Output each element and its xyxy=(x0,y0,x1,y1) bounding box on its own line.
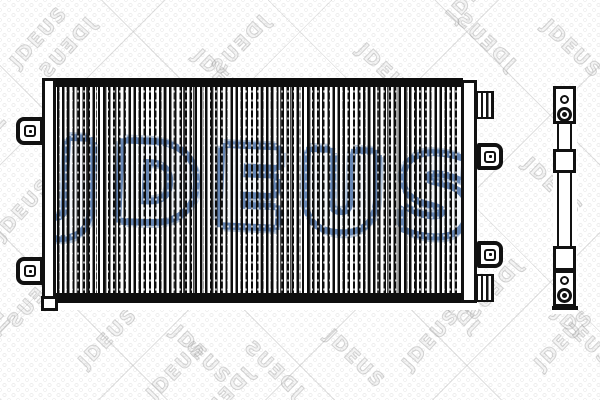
watermark-tile: JDEUS xyxy=(6,2,72,72)
drier-port-ring-bottom xyxy=(560,276,569,285)
watermark-tile: JDEUS xyxy=(74,303,142,372)
grommet-core xyxy=(562,112,567,117)
right-side-tank xyxy=(461,80,477,303)
left-rail-foot xyxy=(41,296,58,311)
watermark-tile: JDEUS xyxy=(442,0,508,26)
mounting-bracket-top-right xyxy=(477,143,503,170)
watermark-tile: JDEUS xyxy=(34,14,100,84)
bolt-hole-dot xyxy=(29,270,32,273)
pipe-fitting-bottom-right xyxy=(476,274,494,302)
drier-mid-block-lower xyxy=(553,246,576,271)
watermark-tile: JDEUS xyxy=(537,15,600,83)
bolt-hole xyxy=(484,151,496,163)
watermark-tile: JDEUS xyxy=(0,269,14,337)
drier-port-ring-top xyxy=(560,95,569,104)
watermark-tile: JDEUS xyxy=(206,11,274,80)
watermark-tile: JDEUS xyxy=(238,335,307,400)
watermark-tile: JDEUS xyxy=(398,304,464,374)
bolt-hole xyxy=(24,265,36,277)
mounting-bracket-bottom-right xyxy=(477,241,503,268)
watermark-tile: JDEUS xyxy=(320,325,389,393)
watermark-tile: JDEUS xyxy=(530,305,598,374)
drier-mid-block-upper xyxy=(553,149,576,173)
pipe-fitting-top-right xyxy=(476,91,494,119)
watermark-tile: JDEUS xyxy=(450,7,519,75)
drier-grommet-bottom xyxy=(557,288,572,303)
left-side-rail xyxy=(42,78,56,310)
bolt-hole-dot xyxy=(29,130,32,133)
drier-foot xyxy=(552,306,578,310)
bottom-header-plate xyxy=(45,293,463,303)
watermark-tile: JDEUS xyxy=(166,321,235,389)
watermark-tile: JDEUS xyxy=(0,69,10,137)
condenser-core-fins xyxy=(57,87,458,293)
grommet-core xyxy=(562,293,567,298)
bolt-hole xyxy=(24,125,36,137)
bolt-hole-dot xyxy=(489,155,492,158)
catalog-product-image: JDEUSJDEUSJDEUSJDEUSJDEUSJDEUSJDEUSJDEUS… xyxy=(0,0,600,400)
mounting-bracket-top-left xyxy=(16,117,44,145)
watermark-tile: JDEUS xyxy=(190,363,258,400)
watermark-tile: JDEUS xyxy=(142,335,210,400)
drier-grommet-top xyxy=(557,107,572,122)
mounting-bracket-bottom-left xyxy=(16,257,44,285)
top-header-plate xyxy=(45,78,463,87)
bolt-hole-dot xyxy=(489,253,492,256)
receiver-drier-bar xyxy=(553,86,577,314)
bolt-hole xyxy=(484,249,496,261)
